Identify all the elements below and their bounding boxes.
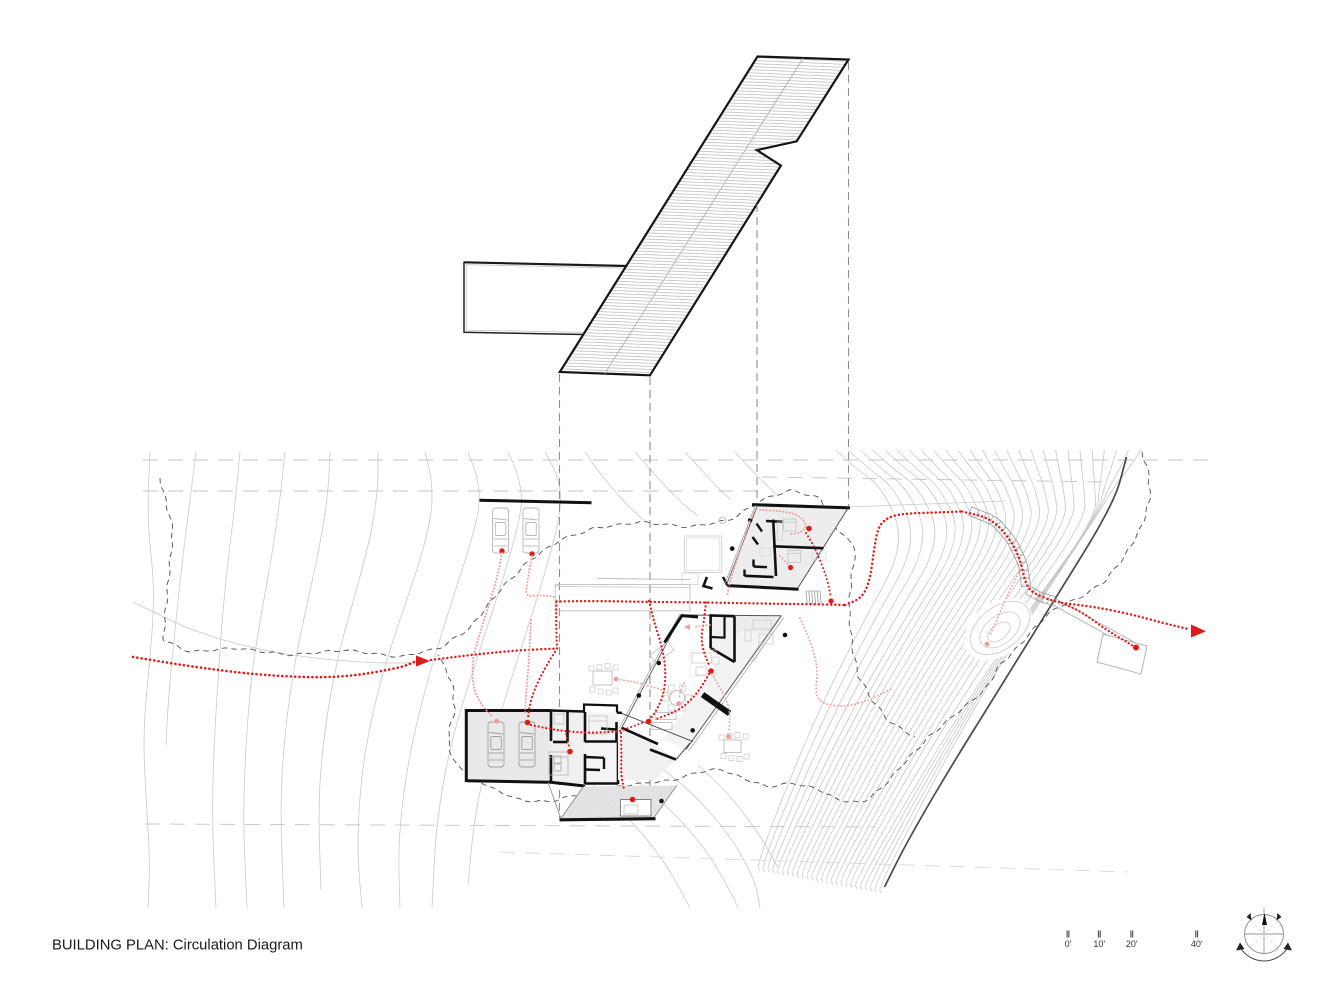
svg-text:40': 40' (1191, 939, 1203, 949)
svg-text:20': 20' (1126, 939, 1138, 949)
svg-text:0': 0' (1065, 939, 1072, 949)
svg-text:10': 10' (1093, 939, 1105, 949)
svg-text:BUILDING PLAN: Circulation Dia: BUILDING PLAN: Circulation Diagram (52, 938, 303, 954)
